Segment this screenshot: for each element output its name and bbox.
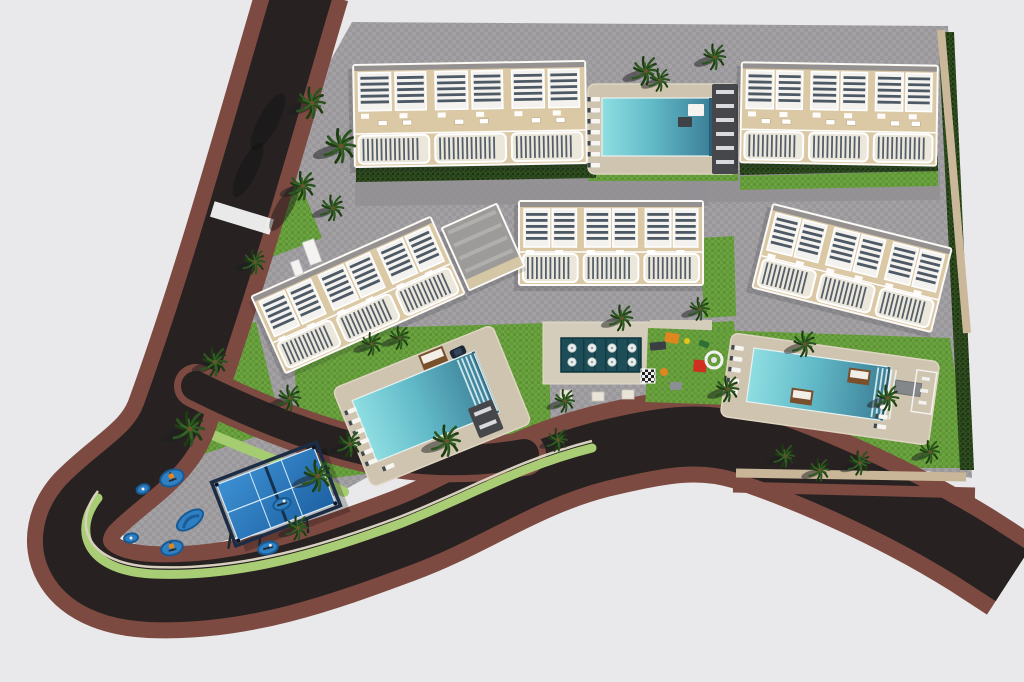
lawn <box>700 236 736 318</box>
apartment-block-1 <box>348 60 588 173</box>
boundary-wall <box>736 473 966 477</box>
apartment-block-4 <box>514 200 704 291</box>
pool-north <box>588 84 739 174</box>
site-plan-canvas <box>0 0 1024 682</box>
site-plan-render <box>0 0 1024 682</box>
boundary-wall <box>733 487 975 493</box>
apartment-block-2 <box>735 61 939 172</box>
